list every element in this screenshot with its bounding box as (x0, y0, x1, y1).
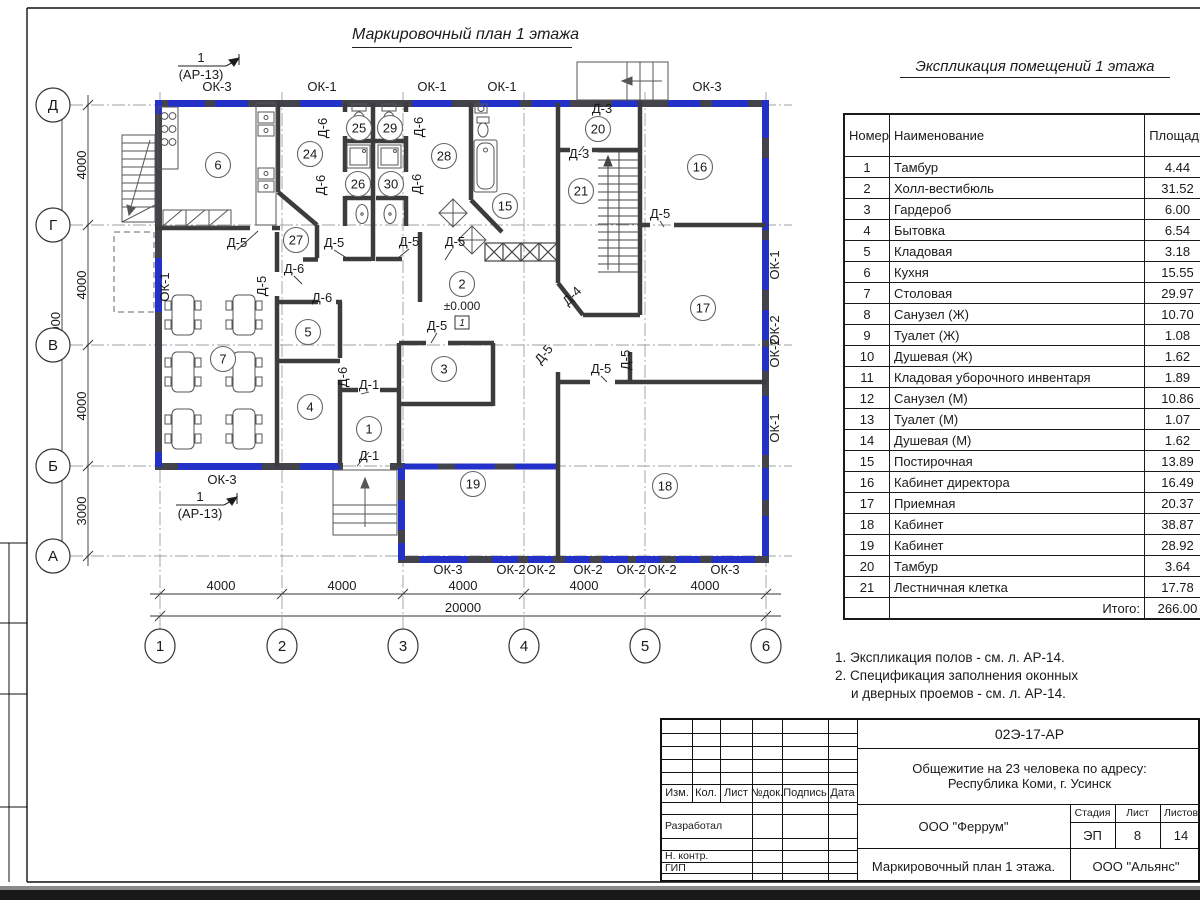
explication-body: 1Тамбур4.442Холл-вестибюль31.523Гардероб… (844, 157, 1200, 598)
svg-text:3: 3 (440, 362, 447, 377)
door-label: Д-5 (324, 235, 344, 250)
table-cell: 6.54 (1145, 220, 1200, 241)
svg-text:16: 16 (693, 160, 707, 175)
total-row: Итого: 266.00 (844, 598, 1200, 620)
svg-text:18: 18 (658, 479, 672, 494)
table-cell: 1 (844, 157, 890, 178)
svg-text:5: 5 (641, 638, 649, 655)
table-cell: Приемная (890, 493, 1145, 514)
axis-col-marker: 6 (751, 629, 781, 663)
room-marker: 26 (346, 172, 371, 197)
tb-sheets-label: Листов (1160, 804, 1200, 822)
axis-row-marker: Г (36, 208, 70, 242)
table-cell: Гардероб (890, 199, 1145, 220)
door-label: Д-6 (284, 261, 304, 276)
svg-text:27: 27 (289, 233, 303, 248)
window-label: ОК-2 (616, 562, 645, 577)
table-cell: 5 (844, 241, 890, 262)
axis-col-marker: 4 (509, 629, 539, 663)
sink-icon (356, 205, 368, 224)
total-value: 266.00 (1145, 598, 1200, 620)
window-label: ОК-1 (767, 250, 782, 279)
table-cell: Кабинет (890, 535, 1145, 556)
dim-label: 4000 (74, 392, 89, 421)
tb-doc-code: 02Э-17-АР (857, 720, 1200, 748)
tb-org-customer: ООО "Альянс" (1070, 848, 1200, 884)
porch-top (577, 62, 668, 100)
table-cell: 19 (844, 535, 890, 556)
svg-text:7: 7 (219, 352, 226, 367)
table-cell: 4 (844, 220, 890, 241)
table-cell: Кладовая уборочного инвентаря (890, 367, 1145, 388)
table-row: 4Бытовка6.54 (844, 220, 1200, 241)
svg-text:30: 30 (384, 177, 398, 192)
room-marker: 30 (379, 172, 404, 197)
toilet-icon (477, 117, 489, 137)
table-cell: Кладовая (890, 241, 1145, 262)
window-label: ОК-2 (496, 562, 525, 577)
svg-text:20: 20 (591, 122, 605, 137)
door-label: Д-6 (335, 367, 350, 387)
window-label: ОК-3 (207, 472, 236, 487)
dim-label: 4000 (328, 578, 357, 593)
door-label: Д-6 (409, 174, 424, 194)
wardrobe-counter (485, 243, 557, 261)
tb-col-kol: Кол. (692, 784, 720, 802)
table-cell: Кабинет директора (890, 472, 1145, 493)
tb-sheet-title: Маркировочный план 1 этажа. (857, 848, 1070, 884)
axis-row-marker: А (36, 539, 70, 573)
door-label: Д-5 (254, 276, 269, 296)
tb-stage-label: Стадия (1070, 804, 1115, 822)
table-cell: Санузел (М) (890, 388, 1145, 409)
room-marker: 7 (211, 347, 236, 372)
tb-col-podpis: Подпись (782, 784, 828, 802)
door-label: Д-6 (315, 118, 330, 138)
table-cell: 3 (844, 199, 890, 220)
table-row: 12Санузел (М)10.86 (844, 388, 1200, 409)
table-cell: 17 (844, 493, 890, 514)
table-row: 20Тамбур3.64 (844, 556, 1200, 577)
svg-text:2: 2 (278, 638, 286, 655)
table-cell: Холл-вестибюль (890, 178, 1145, 199)
svg-text:(АР-13): (АР-13) (178, 506, 223, 521)
room-marker: 16 (688, 155, 713, 180)
tb-role-ncontrol: Н. контр. (662, 850, 755, 862)
table-cell: 6.00 (1145, 199, 1200, 220)
plan-title: Маркировочный план 1 этажа (352, 26, 572, 48)
table-row: 18Кабинет38.87 (844, 514, 1200, 535)
table-cell: 1.62 (1145, 430, 1200, 451)
scan-strip-dark (0, 890, 1200, 900)
total-label: Итого: (890, 598, 1145, 620)
room-marker: 6 (206, 153, 231, 178)
svg-text:6: 6 (762, 638, 770, 655)
door-label: Д-6 (312, 290, 332, 305)
table-cell: 29.97 (1145, 283, 1200, 304)
table-cell: 12 (844, 388, 890, 409)
svg-text:Д: Д (48, 97, 58, 114)
table-row: 17Приемная20.37 (844, 493, 1200, 514)
dining-table-icon (165, 352, 201, 392)
room-marker: 19 (461, 472, 486, 497)
bathtub-icon (474, 140, 497, 192)
note-line: и дверных проемов - см. л. АР-14. (851, 685, 1078, 703)
table-cell: Кабинет (890, 514, 1145, 535)
room-marker: 5 (296, 320, 321, 345)
dim-label: 4000 (74, 271, 89, 300)
door-label: Д-1 (359, 377, 379, 392)
table-cell: 28.92 (1145, 535, 1200, 556)
tb-sheet-value: 8 (1115, 822, 1160, 848)
tb-stage-value: ЭП (1070, 822, 1115, 848)
tb-sheets-value: 14 (1160, 822, 1200, 848)
room-marker: 4 (298, 395, 323, 420)
table-cell: 1.62 (1145, 346, 1200, 367)
porch-bottom (333, 470, 397, 535)
window-label: ОК-2 (647, 562, 676, 577)
outside-stair-left (122, 135, 155, 222)
table-cell: 15.55 (1145, 262, 1200, 283)
washing-machine-icon (439, 199, 467, 227)
table-cell: 20 (844, 556, 890, 577)
table-cell: Туалет (М) (890, 409, 1145, 430)
dining-tables (165, 295, 262, 449)
table-cell: 8 (844, 304, 890, 325)
window-label: ОК-1 (307, 79, 336, 94)
col-header-name: Наименование (890, 114, 1145, 157)
table-cell: Бытовка (890, 220, 1145, 241)
table-cell: 18 (844, 514, 890, 535)
table-cell: 13.89 (1145, 451, 1200, 472)
table-cell: 1.89 (1145, 367, 1200, 388)
svg-text:26: 26 (351, 177, 365, 192)
svg-text:15: 15 (498, 199, 512, 214)
tb-org-designer: ООО "Феррум" (857, 804, 1070, 848)
svg-text:А: А (48, 548, 58, 565)
tb-project: Общежитие на 23 человека по адресу: Респ… (857, 748, 1200, 804)
table-cell: 3.64 (1145, 556, 1200, 577)
table-cell: 4.44 (1145, 157, 1200, 178)
axis-col-marker: 1 (145, 629, 175, 663)
svg-text:Б: Б (48, 458, 58, 475)
svg-text:4: 4 (520, 638, 528, 655)
counter-hatched (163, 210, 231, 226)
room-marker: 17 (691, 296, 716, 321)
window-label: ОК-2 (573, 562, 602, 577)
shower-tray-icon (347, 145, 370, 168)
window-label: ОК-3 (710, 562, 739, 577)
table-row: 16Кабинет директора16.49 (844, 472, 1200, 493)
room-marker: 25 (347, 116, 372, 141)
table-row: 14Душевая (М)1.62 (844, 430, 1200, 451)
axis-row-marker: Б (36, 449, 70, 483)
room-marker: 27 (284, 228, 309, 253)
table-cell: 10 (844, 346, 890, 367)
table-row: 11Кладовая уборочного инвентаря1.89 (844, 367, 1200, 388)
door-label: Д-5 (591, 361, 611, 376)
table-row: 5Кладовая3.18 (844, 241, 1200, 262)
tb-col-data: Дата (828, 784, 857, 802)
explication-table: Номер помещ. Наименование Площадь Ка по … (843, 113, 1200, 620)
svg-text:1: 1 (197, 50, 204, 65)
room-marker: 2 (450, 272, 475, 297)
table-row: 19Кабинет28.92 (844, 535, 1200, 556)
table-row: 2Холл-вестибюль31.52 (844, 178, 1200, 199)
table-cell: 20.37 (1145, 493, 1200, 514)
table-cell: 3.18 (1145, 241, 1200, 262)
svg-text:17: 17 (696, 301, 710, 316)
tb-sheet-label: Лист (1115, 804, 1160, 822)
section-marker-top: 1 (АР-13) (178, 50, 239, 82)
table-cell: 9 (844, 325, 890, 346)
dim-label: 20000 (445, 600, 481, 615)
tb-project-line2: Республика Коми, г. Усинск (948, 776, 1111, 791)
door-label: Д-6 (411, 117, 426, 137)
dining-table-icon (165, 409, 201, 449)
table-cell: 16 (844, 472, 890, 493)
table-cell: Столовая (890, 283, 1145, 304)
dim-label: 4000 (449, 578, 478, 593)
window-label: ОК-3 (433, 562, 462, 577)
svg-text:1: 1 (459, 318, 465, 329)
svg-text:1: 1 (156, 638, 164, 655)
table-cell: 1.08 (1145, 325, 1200, 346)
col-header-num: Номер помещ. (844, 114, 890, 157)
table-cell: Постирочная (890, 451, 1145, 472)
shower-tray-icon (378, 145, 401, 168)
axis-col-marker: 3 (388, 629, 418, 663)
tb-col-izm: Изм. (662, 784, 692, 802)
tb-project-line1: Общежитие на 23 человека по адресу: (912, 761, 1146, 776)
svg-text:5: 5 (304, 325, 311, 340)
svg-text:1: 1 (365, 422, 372, 437)
svg-text:В: В (48, 337, 58, 354)
room-marker: 24 (298, 142, 323, 167)
svg-text:21: 21 (574, 184, 588, 199)
dim-label: 4000 (691, 578, 720, 593)
room-marker: 15 (493, 194, 518, 219)
dim-label: 4000 (570, 578, 599, 593)
table-cell: 2 (844, 178, 890, 199)
svg-text:3: 3 (399, 638, 407, 655)
table-row: 3Гардероб6.00 (844, 199, 1200, 220)
table-cell: 6 (844, 262, 890, 283)
title-block: Изм. Кол. Лист №док. Подпись Дата Разраб… (660, 718, 1200, 882)
sink-icon (384, 205, 396, 224)
table-row: 8Санузел (Ж)10.70 (844, 304, 1200, 325)
table-row: 15Постирочная13.89 (844, 451, 1200, 472)
svg-text:29: 29 (383, 121, 397, 136)
axis-row-marker: Д (36, 88, 70, 122)
door-label: Д-5 (427, 318, 447, 333)
door-label: Д-3 (592, 101, 612, 116)
table-cell: 16.49 (1145, 472, 1200, 493)
table-cell: 38.87 (1145, 514, 1200, 535)
room-marker: 29 (378, 116, 403, 141)
svg-text:25: 25 (352, 121, 366, 136)
window-label: ОК-1 (417, 79, 446, 94)
table-cell: Кухня (890, 262, 1145, 283)
note-line: 2. Спецификация заполнения оконных (835, 667, 1078, 685)
table-cell: 11 (844, 367, 890, 388)
table-cell: Душевая (М) (890, 430, 1145, 451)
room-marker: 3 (432, 357, 457, 382)
tb-col-dok: №док. (752, 784, 782, 802)
scan-strip-light (0, 886, 1200, 890)
dining-table-icon (226, 409, 262, 449)
table-cell: Тамбур (890, 556, 1145, 577)
door-label: Д-5 (650, 206, 670, 221)
drawing-sheet: { "colors": { "accent_blue": "#2431c8", … (0, 0, 1200, 900)
svg-text:Г: Г (49, 217, 57, 234)
table-cell: 7 (844, 283, 890, 304)
col-header-area: Площадь (1145, 114, 1200, 157)
table-cell: 10.86 (1145, 388, 1200, 409)
axis-col-marker: 5 (630, 629, 660, 663)
axis-grid-lines (70, 92, 792, 630)
explication-title: Экспликация помещений 1 этажа (900, 58, 1170, 78)
door-label: Д-5 (227, 235, 247, 250)
table-row: 21Лестничная клетка17.78 (844, 577, 1200, 598)
room-marker: 28 (432, 144, 457, 169)
table-cell: 21 (844, 577, 890, 598)
table-cell: 10.70 (1145, 304, 1200, 325)
table-cell: Туалет (Ж) (890, 325, 1145, 346)
window-label: ОК-1 (157, 272, 172, 301)
section-marker-bottom: 1 (АР-13) (176, 489, 237, 521)
window-label: ОК-3 (692, 79, 721, 94)
tb-col-list: Лист (720, 784, 752, 802)
window-label: ОК-2 (767, 338, 782, 367)
table-cell: Тамбур (890, 157, 1145, 178)
axis-col-marker: 2 (267, 629, 297, 663)
table-cell: Санузел (Ж) (890, 304, 1145, 325)
table-cell: 31.52 (1145, 178, 1200, 199)
table-cell: 1.07 (1145, 409, 1200, 430)
dim-label: 4000 (74, 151, 89, 180)
window-label: ОК-2 (526, 562, 555, 577)
dim-label: 4000 (207, 578, 236, 593)
svg-text:19: 19 (466, 477, 480, 492)
notes: 1. Экспликация полов - см. л. АР-14. 2. … (835, 649, 1078, 703)
tb-role-developer: Разработал (662, 814, 755, 838)
table-row: 7Столовая29.97 (844, 283, 1200, 304)
axis-row-marker: В (36, 328, 70, 362)
table-row: 10Душевая (Ж)1.62 (844, 346, 1200, 367)
svg-text:4: 4 (306, 400, 313, 415)
table-cell: Лестничная клетка (890, 577, 1145, 598)
room-marker: 20 (586, 117, 611, 142)
door-label: Д-5 (399, 234, 419, 249)
svg-text:28: 28 (437, 149, 451, 164)
table-row: 13Туалет (М)1.07 (844, 409, 1200, 430)
window-label: ОК-3 (202, 79, 231, 94)
table-row: 9Туалет (Ж)1.08 (844, 325, 1200, 346)
svg-text:±0.000: ±0.000 (444, 299, 481, 313)
table-cell: Душевая (Ж) (890, 346, 1145, 367)
svg-text:2: 2 (458, 277, 465, 292)
door-label: Д-1 (359, 448, 379, 463)
door-label: Д-5 (445, 234, 465, 249)
canopy-dashed (114, 232, 154, 312)
table-row: 1Тамбур4.44 (844, 157, 1200, 178)
table-cell: 15 (844, 451, 890, 472)
room-marker: 1 (357, 417, 382, 442)
room-marker: 21 (569, 179, 594, 204)
exterior-walls (155, 100, 769, 563)
door-label: Д-6 (313, 175, 328, 195)
window-label: ОК-1 (487, 79, 516, 94)
table-cell: 13 (844, 409, 890, 430)
stairs-room21 (598, 152, 639, 272)
svg-text:1: 1 (196, 489, 203, 504)
dim-label: 3000 (74, 497, 89, 526)
dining-table-icon (226, 295, 262, 335)
svg-text:6: 6 (214, 158, 221, 173)
svg-text:24: 24 (303, 147, 317, 162)
room-marker: 18 (653, 474, 678, 499)
table-row: 6Кухня15.55 (844, 262, 1200, 283)
table-cell: 14 (844, 430, 890, 451)
tb-role-gip: ГИП (662, 862, 755, 873)
table-cell: 17.78 (1145, 577, 1200, 598)
note-line: 1. Экспликация полов - см. л. АР-14. (835, 649, 1078, 667)
explication-table-wrap: Номер помещ. Наименование Площадь Ка по … (843, 113, 1200, 620)
door-label: Д-5 (618, 350, 633, 370)
window-label: ОК-1 (767, 413, 782, 442)
door-label: Д-3 (569, 146, 589, 161)
